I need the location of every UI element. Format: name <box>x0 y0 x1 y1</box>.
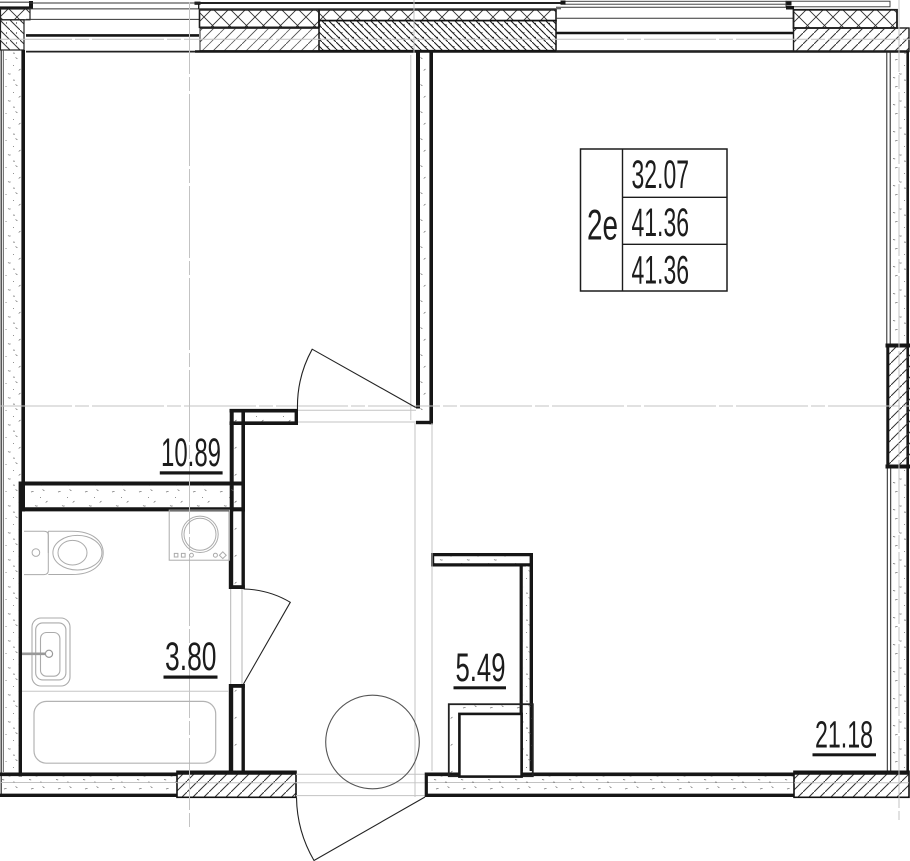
svg-text:10.89: 10.89 <box>161 431 221 475</box>
svg-text:2е: 2е <box>587 203 618 250</box>
svg-text:41.36: 41.36 <box>632 248 690 292</box>
svg-text:21.18: 21.18 <box>815 715 873 757</box>
svg-text:32.07: 32.07 <box>632 153 690 197</box>
svg-text:5.49: 5.49 <box>456 646 506 690</box>
svg-text:41.36: 41.36 <box>632 201 690 245</box>
svg-text:3.80: 3.80 <box>165 635 217 679</box>
